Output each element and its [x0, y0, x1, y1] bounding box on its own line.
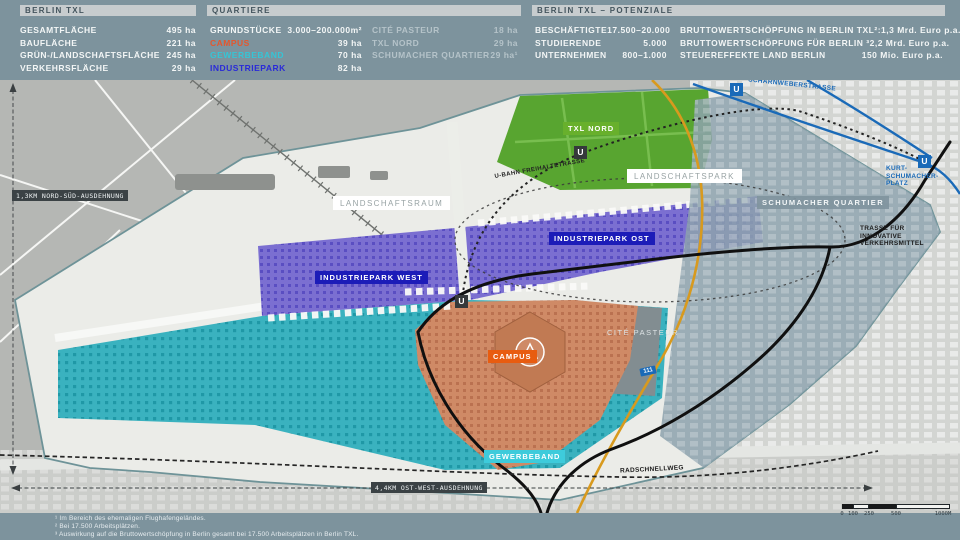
ubahn-station-campus: U — [455, 295, 468, 308]
stat-value: 29 ha¹ — [490, 49, 518, 62]
potenziale-right-column: BRUTTOWERTSCHÖPFUNG IN BERLIN TXL²:1,3 M… — [680, 24, 943, 62]
stat-label: TXL NORD — [372, 37, 419, 50]
quartiere-left-column: GRUNDSTÜCKE3.000–200.000m² CAMPUS39 ha G… — [210, 24, 362, 74]
stat-value: 18 ha — [494, 24, 518, 37]
stat-label: STEUEREFFEKTE LAND BERLIN — [680, 49, 826, 62]
panel-berlin-txl: BERLIN TXL GESAMTFLÄCHE495 ha BAUFLÄCHE2… — [20, 0, 196, 80]
dimension-north-south: 1,3KM NORD-SÜD-AUSDEHNUNG — [12, 190, 128, 201]
stat-label: BAUFLÄCHE — [20, 37, 77, 50]
label-industriepark-ost: INDUSTRIEPARK OST — [549, 232, 655, 245]
scale-segment — [842, 504, 853, 509]
label-schumacher-quartier: SCHUMACHER QUARTIER — [757, 196, 889, 209]
stat-row: BAUFLÄCHE221 ha — [20, 37, 196, 50]
stat-row: GEWERBEBAND70 ha — [210, 49, 362, 62]
footer: ¹ Im Bereich des ehemaligen Flughafengel… — [0, 513, 960, 540]
scale-bar: 0 100 250 500 1000M — [842, 504, 954, 509]
stat-label: CITÉ PASTEUR — [372, 24, 440, 37]
stat-label: STUDIERENDE — [535, 37, 601, 50]
stat-value: 17.500–20.000 — [607, 24, 670, 37]
stat-row: SCHUMACHER QUARTIER29 ha¹ — [372, 49, 518, 62]
stat-row: BESCHÄFTIGTE17.500–20.000 — [535, 24, 667, 37]
stat-label: BRUTTOWERTSCHÖPFUNG FÜR BERLIN ³ — [680, 37, 870, 50]
footnote-1: ¹ Im Bereich des ehemaligen Flughafengel… — [55, 515, 358, 523]
panel-potenziale: BERLIN TXL – POTENZIALE BESCHÄFTIGTE17.5… — [532, 0, 945, 80]
scale-tick: 250 — [864, 511, 874, 517]
ubahn-station-kurt-schumacher-platz: U — [918, 155, 931, 168]
stat-value: 29 ha — [172, 62, 196, 75]
map-canvas — [0, 80, 960, 513]
panel-title-quartiere: QUARTIERE — [207, 5, 521, 16]
stat-value: 2,2 Mrd. Euro p.a. — [870, 37, 950, 50]
stat-row: UNTERNEHMEN800–1.000 — [535, 49, 667, 62]
scale-segments — [842, 504, 954, 509]
stat-row: CITÉ PASTEUR18 ha — [372, 24, 518, 37]
label-industriepark-west: INDUSTRIEPARK WEST — [315, 271, 428, 284]
stat-rows: GESAMTFLÄCHE495 ha BAUFLÄCHE221 ha GRÜN-… — [20, 24, 196, 74]
stat-label: GRÜN-/LANDSCHAFTSFLÄCHE — [20, 49, 160, 62]
stat-value: 39 ha — [338, 37, 362, 50]
quartiere-right-column: CITÉ PASTEUR18 ha TXL NORD29 ha SCHUMACH… — [372, 24, 518, 62]
stat-value: 70 ha — [338, 49, 362, 62]
stat-row: STUDIERENDE5.000 — [535, 37, 667, 50]
berlin-txl-infographic: BERLIN TXL GESAMTFLÄCHE495 ha BAUFLÄCHE2… — [0, 0, 960, 540]
stat-row: INDUSTRIEPARK82 ha — [210, 62, 362, 75]
stat-label: BESCHÄFTIGTE — [535, 24, 607, 37]
stat-row: CAMPUS39 ha — [210, 37, 362, 50]
potenziale-left-column: BESCHÄFTIGTE17.500–20.000 STUDIERENDE5.0… — [535, 24, 667, 62]
stat-label-industriepark: INDUSTRIEPARK — [210, 62, 286, 75]
footnotes: ¹ Im Bereich des ehemaligen Flughafengel… — [55, 515, 358, 540]
stat-row: TXL NORD29 ha — [372, 37, 518, 50]
label-trasse-innovative-verkehrsmittel: TRASSE FÜR INNOVATIVE VERKEHRSMITTEL — [860, 225, 924, 248]
stat-value: 800–1.000 — [622, 49, 667, 62]
stat-row: BRUTTOWERTSCHÖPFUNG FÜR BERLIN ³2,2 Mrd.… — [680, 37, 943, 50]
stat-label-gewerbeband: GEWERBEBAND — [210, 49, 284, 62]
stat-value: 82 ha — [338, 62, 362, 75]
stat-value: 245 ha — [167, 49, 196, 62]
site-map: LANDSCHAFTSRAUM LANDSCHAFTSPARK TXL NORD… — [0, 80, 960, 513]
stat-row: STEUEREFFEKTE LAND BERLIN150 Mio. Euro p… — [680, 49, 943, 62]
footnote-3: ³ Auswirkung auf die Bruttowertschöpfung… — [55, 531, 358, 539]
stat-value: 221 ha — [167, 37, 196, 50]
stat-label: BRUTTOWERTSCHÖPFUNG IN BERLIN TXL²: — [680, 24, 881, 37]
stat-label: GRUNDSTÜCKE — [210, 24, 282, 37]
header: BERLIN TXL GESAMTFLÄCHE495 ha BAUFLÄCHE2… — [0, 0, 960, 80]
scale-tick: 1000M — [935, 511, 952, 517]
panel-quartiere: QUARTIERE GRUNDSTÜCKE3.000–200.000m² CAM… — [207, 0, 521, 80]
stat-label: VERKEHRSFLÄCHE — [20, 62, 109, 75]
panel-title-berlin-txl: BERLIN TXL — [20, 5, 196, 16]
ubahn-station-scharnweberstrasse: U — [730, 83, 743, 96]
stat-row: GESAMTFLÄCHE495 ha — [20, 24, 196, 37]
scale-segment — [853, 504, 869, 509]
scale-segment — [869, 504, 896, 509]
stat-value: 495 ha — [167, 24, 196, 37]
stat-value: 5.000 — [643, 37, 667, 50]
stat-label: SCHUMACHER QUARTIER — [372, 49, 490, 62]
scale-tick: 500 — [891, 511, 901, 517]
stat-row: VERKEHRSFLÄCHE29 ha — [20, 62, 196, 75]
label-landschaftsraum: LANDSCHAFTSRAUM — [333, 196, 450, 210]
label-kurt-schumacher-platz: KURT- SCHUMACHER- PLATZ — [886, 165, 938, 188]
stat-value: 150 Mio. Euro p.a. — [862, 49, 943, 62]
dimension-ost-west: 4,4KM OST-WEST-AUSDEHNUNG — [371, 482, 487, 493]
panel-title-potenziale: BERLIN TXL – POTENZIALE — [532, 5, 945, 16]
label-cite-pasteur: CITÉ PASTEUR — [607, 328, 679, 337]
stat-row: BRUTTOWERTSCHÖPFUNG IN BERLIN TXL²:1,3 M… — [680, 24, 943, 37]
stat-value: 1,3 Mrd. Euro p.a. — [881, 24, 960, 37]
stat-value: 29 ha — [494, 37, 518, 50]
label-landschaftspark: LANDSCHAFTSPARK — [627, 169, 742, 183]
stat-value: 3.000–200.000m² — [287, 24, 362, 37]
scale-segment — [896, 504, 950, 509]
label-txl-nord: TXL NORD — [563, 122, 619, 135]
label-campus: CAMPUS — [488, 350, 537, 363]
footnote-2: ² Bei 17.500 Arbeitsplätzen. — [55, 523, 358, 531]
scale-tick: 0 — [840, 511, 843, 517]
stat-label: GESAMTFLÄCHE — [20, 24, 97, 37]
stat-row: GRUNDSTÜCKE3.000–200.000m² — [210, 24, 362, 37]
stat-label: UNTERNEHMEN — [535, 49, 607, 62]
stat-row: GRÜN-/LANDSCHAFTSFLÄCHE245 ha — [20, 49, 196, 62]
ubahn-station-txl-nord: U — [574, 146, 587, 159]
scale-tick: 100 — [848, 511, 858, 517]
stat-label-campus: CAMPUS — [210, 37, 250, 50]
label-gewerbeband: GEWERBEBAND — [484, 450, 565, 463]
